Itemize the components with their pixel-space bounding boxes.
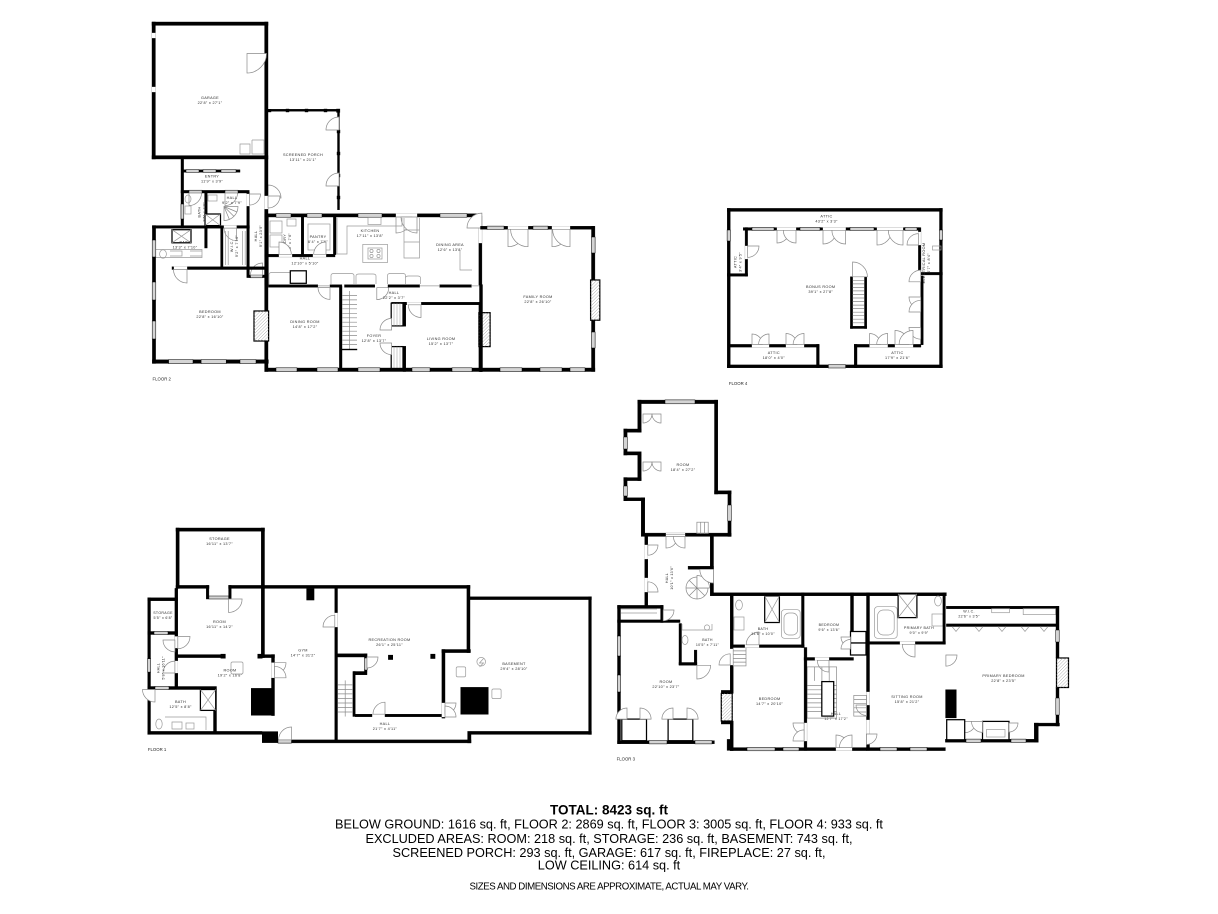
svg-text:W.I.C.: W.I.C. [963,610,975,614]
svg-text:4'7" x 8'4": 4'7" x 8'4" [927,253,931,273]
svg-text:BATH: BATH [198,206,202,217]
svg-text:22'6" x 3'5": 22'6" x 3'5" [958,615,980,619]
svg-text:9'1" x 23'9": 9'1" x 23'9" [259,224,263,247]
svg-text:LIVING ROOM: LIVING ROOM [427,337,456,341]
svg-text:22'10" x 23'7": 22'10" x 23'7" [652,685,679,689]
svg-text:12'10" x 5'10": 12'10" x 5'10" [291,262,318,266]
svg-text:5'8" x 16'11": 5'8" x 16'11" [162,656,166,680]
svg-text:ATTIC: ATTIC [891,351,903,355]
svg-text:ATTIC: ATTIC [768,351,780,355]
svg-text:9'6" x 13'6": 9'6" x 13'6" [818,628,840,632]
svg-text:SITTING ROOM: SITTING ROOM [891,695,922,699]
svg-text:FLOOR 3: FLOOR 3 [617,757,636,762]
svg-text:BASEMENT: BASEMENT [502,662,526,666]
svg-text:15'2" x 13'7": 15'2" x 13'7" [429,342,454,346]
svg-text:17'9" x 21'6": 17'9" x 21'6" [885,356,910,360]
svg-text:DINING AREA: DINING AREA [436,243,464,247]
svg-text:ROOM: ROOM [659,680,672,684]
svg-text:ROOM: ROOM [213,620,226,624]
svg-text:STORAGE: STORAGE [209,537,230,541]
svg-text:18'0" x 4'0": 18'0" x 4'0" [763,356,786,360]
svg-text:ATTIC: ATTIC [734,256,738,268]
svg-text:GARAGE: GARAGE [201,96,219,100]
svg-text:SIZES AND DIMENSIONS ARE APPRO: SIZES AND DIMENSIONS ARE APPROXIMATE, AC… [470,881,749,892]
svg-text:21'7" x 4'11": 21'7" x 4'11" [373,727,398,731]
svg-text:ROOM: ROOM [676,463,689,467]
svg-text:BATH: BATH [175,700,186,704]
svg-text:HALL: HALL [665,573,669,583]
svg-text:18'4" x 27'2": 18'4" x 27'2" [671,468,696,472]
svg-text:ATTIC: ATTIC [820,215,832,219]
svg-text:9'0" x 9'9": 9'0" x 9'9" [909,631,928,635]
svg-text:PANTRY: PANTRY [310,235,327,239]
svg-text:HALL: HALL [254,231,258,242]
svg-text:GYM: GYM [298,649,308,653]
svg-text:13'3" x 7'10": 13'3" x 7'10" [173,246,198,250]
svg-text:3'4" x 9'5": 3'4" x 9'5" [739,252,743,272]
svg-text:STORAGE: STORAGE [153,611,173,615]
svg-text:39'1" x 27'8": 39'1" x 27'8" [808,290,833,294]
svg-text:12'8" x 13'7": 12'8" x 13'7" [362,339,387,343]
svg-text:13'11" x 21'1": 13'11" x 21'1" [290,158,317,162]
svg-text:EXCLUDED AREAS: ROOM: 218 sq.: EXCLUDED AREAS: ROOM: 218 sq. ft, STORAG… [366,832,853,846]
svg-text:29'4" x 28'10": 29'4" x 28'10" [500,667,527,671]
svg-text:26'1" x 25'11": 26'1" x 25'11" [376,643,403,647]
svg-text:ENTRY: ENTRY [205,175,219,179]
svg-text:14'7" x 20'10": 14'7" x 20'10" [756,702,783,706]
svg-text:DINING ROOM: DINING ROOM [290,320,319,324]
svg-text:5'5" x 6'8": 5'5" x 6'8" [153,616,172,620]
svg-text:FLOOR 1: FLOOR 1 [148,747,167,752]
svg-text:16'11" x 13'7": 16'11" x 13'7" [206,542,233,546]
svg-text:PRIMARY BATH: PRIMARY BATH [904,626,934,630]
svg-text:TOTAL: 8423 sq. ft: TOTAL: 8423 sq. ft [550,802,669,817]
svg-text:22'8" x 26'10": 22'8" x 26'10" [524,300,551,304]
svg-text:BEDROOM: BEDROOM [199,310,221,314]
svg-text:11'9" x 3'9": 11'9" x 3'9" [201,180,223,184]
svg-text:BELOW GROUND: 1616 sq. ft, FLO: BELOW GROUND: 1616 sq. ft, FLOOR 2: 2869… [335,818,883,832]
svg-text:RECREATION ROOM: RECREATION ROOM [369,638,411,642]
svg-text:16'11" x 14'2": 16'11" x 14'2" [206,625,233,629]
svg-text:10'1" x 13'6": 10'1" x 13'6" [670,566,674,590]
svg-text:HALL: HALL [300,257,311,261]
svg-text:14'6" x 10'0": 14'6" x 10'0" [751,632,775,636]
svg-text:BEDROOM: BEDROOM [759,697,781,701]
svg-text:12'6" x 13'8": 12'6" x 13'8" [438,248,463,252]
svg-text:22'8" x 23'5": 22'8" x 23'5" [991,679,1016,683]
svg-text:22'2" x 3'7": 22'2" x 3'7" [383,296,406,300]
svg-text:HALL: HALL [831,712,841,716]
svg-text:LOW CEILING: 614 sq. ft: LOW CEILING: 614 sq. ft [538,858,681,872]
svg-text:KITCHEN: KITCHEN [361,229,380,233]
svg-text:FOYER: FOYER [367,334,382,338]
svg-text:HALL: HALL [380,722,391,726]
svg-text:14'7" x 31'2": 14'7" x 31'2" [291,654,316,658]
svg-text:PRIMARY BEDROOM: PRIMARY BEDROOM [982,674,1024,678]
svg-text:ROOM: ROOM [223,669,236,673]
svg-text:12'5" x 8'8": 12'5" x 8'8" [169,705,192,709]
svg-text:17'11" x 13'8": 17'11" x 13'8" [357,234,384,238]
svg-text:W.I.C.: W.I.C. [230,240,234,252]
svg-text:22'8" x 27'1": 22'8" x 27'1" [198,101,223,105]
svg-text:22'8" x 16'10": 22'8" x 16'10" [196,315,223,319]
svg-text:FLOOR 2: FLOOR 2 [153,377,172,382]
svg-text:BATH: BATH [702,638,713,642]
svg-text:BATH: BATH [179,241,190,245]
svg-text:14'8" x 17'2": 14'8" x 17'2" [293,325,318,329]
svg-text:BEDROOM: BEDROOM [819,623,840,627]
svg-text:15'8" x 21'2": 15'8" x 21'2" [895,700,920,704]
svg-text:BONUS ROOM: BONUS ROOM [806,285,835,289]
svg-text:SCREENED PORCH: SCREENED PORCH [283,153,323,157]
svg-text:12'7" x 17'2": 12'7" x 17'2" [824,717,848,721]
svg-text:10'5" x 7'11": 10'5" x 7'11" [696,643,720,647]
svg-text:HALL: HALL [157,663,161,673]
svg-text:HALL: HALL [389,291,400,295]
svg-text:43'2" x 3'3": 43'2" x 3'3" [815,220,838,224]
svg-text:FLOOR 4: FLOOR 4 [729,381,748,386]
svg-text:HALL: HALL [227,196,238,200]
svg-text:BATH: BATH [758,627,769,631]
svg-text:FAMILY ROOM: FAMILY ROOM [523,295,552,299]
svg-text:9'2" x 7'10": 9'2" x 7'10" [235,234,239,257]
svg-text:9'2" x 7'9": 9'2" x 7'9" [222,201,242,205]
